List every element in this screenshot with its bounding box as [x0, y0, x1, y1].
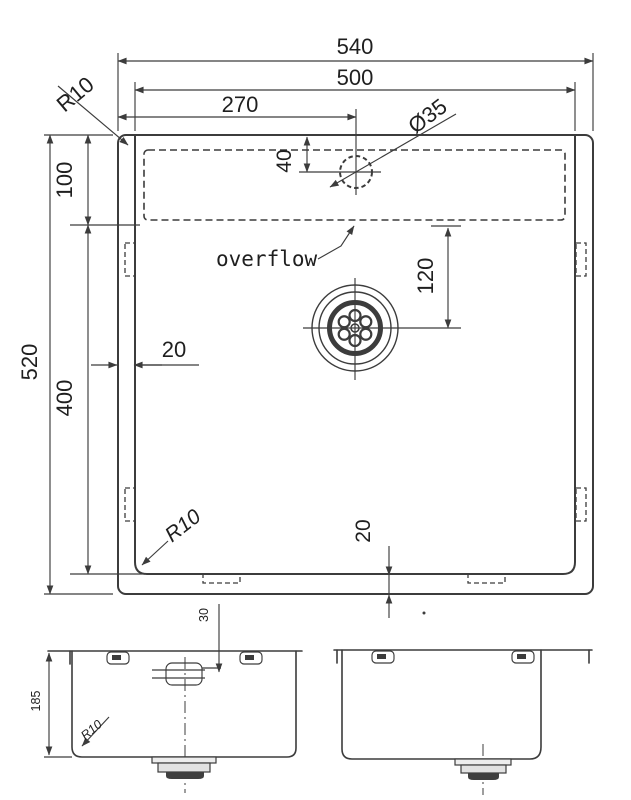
dim-bowl-length-label: 400 — [52, 380, 77, 417]
overflow-knockout — [152, 663, 221, 685]
side-clips — [372, 651, 534, 663]
drawing-canvas: 540 500 270 R10 Ø35 40 100 520 400 20 12… — [0, 0, 631, 800]
dim-overflow-to-drain-label: 120 — [413, 258, 438, 295]
dim-faucet-diameter-label: Ø35 — [403, 94, 451, 139]
front-drain-fitting — [152, 757, 216, 779]
stray-dot — [423, 612, 426, 615]
side-body-outline — [342, 650, 541, 759]
mounting-clip — [468, 574, 505, 583]
dim-overflow-from-rim-label: 30 — [197, 608, 211, 622]
dim-rim-gap-left-label: 20 — [162, 337, 186, 362]
hidden-bowl-contour — [144, 150, 565, 220]
mounting-clip — [125, 488, 135, 521]
dim-deck-depth-label: 100 — [52, 162, 77, 199]
leader-r10-bowl — [142, 541, 168, 565]
mounting-clip — [576, 488, 586, 521]
front-section-view: 185 R10 30 — [29, 604, 302, 793]
overflow-label: overflow — [216, 247, 318, 271]
dim-overall-length-label: 520 — [17, 344, 42, 381]
side-section-view — [334, 650, 592, 795]
mounting-clip — [203, 574, 240, 583]
dim-bowl-width-label: 500 — [337, 65, 374, 90]
dim-rim-gap-bottom-label: 20 — [352, 519, 375, 542]
front-body-outline — [72, 651, 296, 757]
sink-technical-drawing: 540 500 270 R10 Ø35 40 100 520 400 20 12… — [0, 0, 631, 800]
mounting-clip — [125, 243, 135, 276]
mounting-clip — [576, 243, 586, 276]
dim-overall-width-label: 540 — [337, 34, 374, 59]
dim-corner-radius-top-label: R10 — [52, 72, 99, 117]
dim-corner-radius-front-label: R10 — [78, 717, 105, 742]
dim-faucet-from-top-label: 40 — [273, 149, 296, 172]
dim-corner-radius-bowl-label: R10 — [161, 505, 206, 547]
plan-view: 540 500 270 R10 Ø35 40 100 520 400 20 12… — [17, 34, 593, 618]
dim-faucet-offset-label: 270 — [222, 92, 259, 117]
leader-overflow — [318, 226, 354, 259]
side-drain-fitting — [455, 759, 511, 780]
dim-bowl-depth-label: 185 — [29, 691, 43, 712]
